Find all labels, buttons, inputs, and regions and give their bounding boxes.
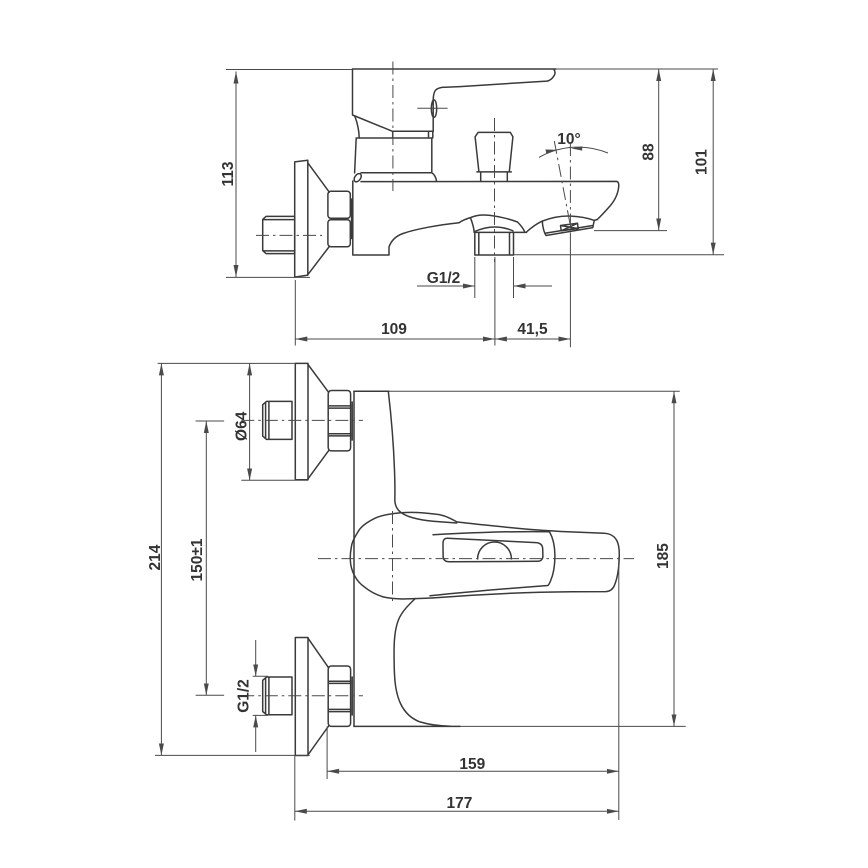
svg-text:10°: 10° bbox=[557, 131, 580, 148]
svg-text:G1/2: G1/2 bbox=[236, 679, 253, 713]
svg-text:177: 177 bbox=[446, 795, 472, 812]
svg-text:113: 113 bbox=[220, 161, 237, 186]
svg-text:88: 88 bbox=[641, 143, 658, 161]
svg-text:214: 214 bbox=[147, 544, 164, 570]
svg-text:150±1: 150±1 bbox=[189, 538, 206, 581]
svg-text:109: 109 bbox=[381, 321, 407, 338]
svg-text:101: 101 bbox=[694, 149, 711, 175]
svg-text:G1/2: G1/2 bbox=[427, 270, 461, 287]
svg-text:185: 185 bbox=[655, 543, 672, 569]
svg-text:Ø64: Ø64 bbox=[234, 411, 251, 441]
svg-text:159: 159 bbox=[459, 756, 485, 773]
svg-text:41,5: 41,5 bbox=[517, 321, 548, 338]
